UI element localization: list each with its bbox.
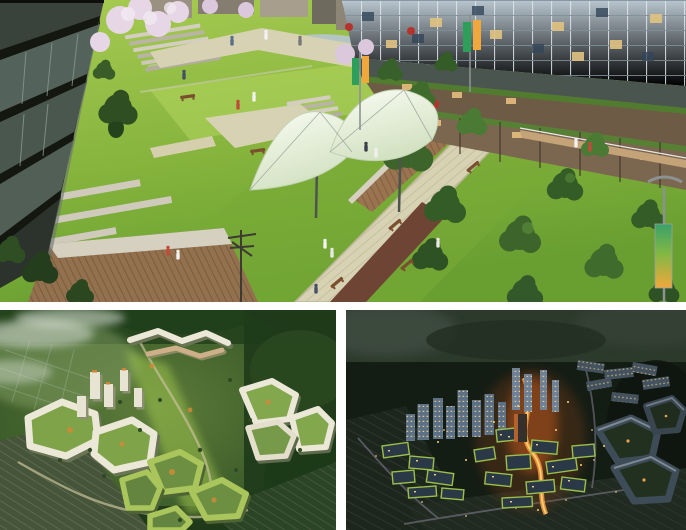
aerial-day-scene xyxy=(0,310,336,530)
panel-linear-park xyxy=(0,0,686,302)
aerial-dusk-scene: . xyxy=(346,310,686,530)
rendering-collage: . xyxy=(0,0,686,530)
panel-aerial-dusk: . xyxy=(346,310,686,530)
panel-aerial-day xyxy=(0,310,336,530)
linear-park-scene xyxy=(0,0,686,302)
